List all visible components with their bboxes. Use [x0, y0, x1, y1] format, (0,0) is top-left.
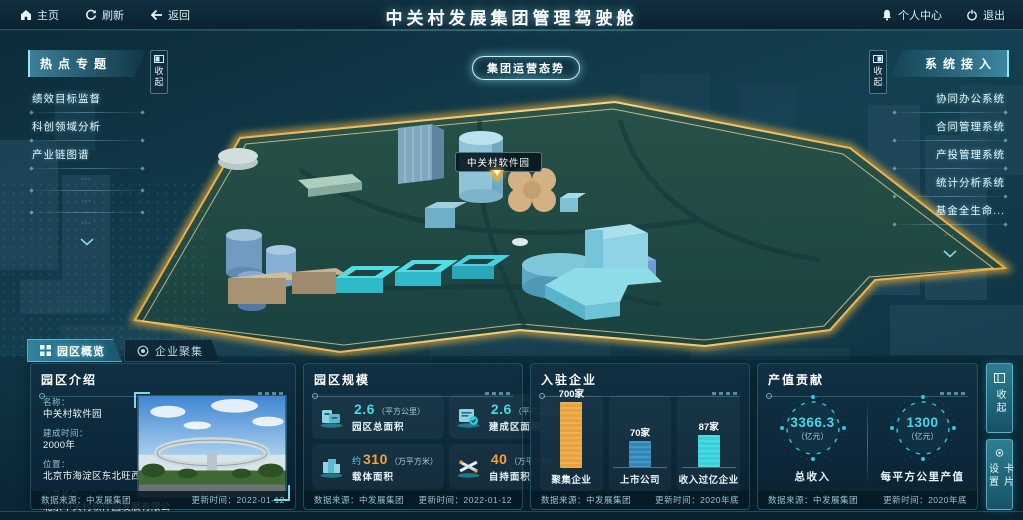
bar-value-label: 700家 — [559, 386, 584, 400]
stat-total-area: 2.6（平方公里） 园区总面积 — [312, 394, 444, 439]
system-item[interactable]: 产投管理系统 — [891, 141, 1009, 168]
stat-unit: （万平方米） — [390, 456, 438, 467]
placeholder-item: ⋯ — [28, 213, 146, 234]
stat-carrier-area: 约310（万平方米） 载体面积 — [312, 444, 444, 489]
data-source: 数据来源：中发展集团 — [541, 494, 631, 506]
system-access-panel: 系统接入 收起 协同办公系统 合同管理系统 产投管理系统 统计分析系统 基金全生… — [891, 50, 1009, 258]
stat-value: 2.6 — [354, 401, 375, 417]
stat-name: 园区总面积 — [352, 419, 425, 433]
cross-area-icon — [455, 453, 482, 480]
tab-enterprise-cluster[interactable]: 企业聚集 — [124, 339, 220, 362]
bar-category-label: 聚集企业 — [551, 472, 591, 486]
panel-title: 园区介绍 — [31, 364, 295, 388]
bar-card: 70家 上市公司 — [609, 395, 672, 491]
bar-value-label: 70家 — [630, 425, 650, 439]
system-item[interactable]: 合同管理系统 — [891, 113, 1009, 140]
map-marker-pin-icon[interactable] — [490, 170, 504, 181]
bar-value-label: 87家 — [699, 419, 719, 433]
hot-topic-item[interactable]: 科创领域分析 — [28, 113, 146, 140]
divider — [28, 112, 146, 113]
panel-title: 产值贡献 — [758, 364, 977, 388]
gauge-unit: （亿元） — [797, 431, 829, 442]
update-time: 更新时间：2020年底 — [883, 494, 967, 506]
gauge-value: 3366.3 — [790, 415, 834, 430]
refresh-icon — [85, 9, 97, 21]
home-button[interactable]: 主页 — [20, 7, 59, 23]
stat-value: 40 — [491, 451, 508, 467]
gauge-total-revenue: 3366.3 （亿元） 总收入 — [758, 394, 867, 492]
update-time: 更新时间：2022-01-12 — [419, 494, 512, 506]
hot-topic-item[interactable]: 绩效目标监督 — [28, 85, 146, 112]
placeholder-item: ⋯ — [28, 169, 146, 190]
bar-card: 87家 收入过亿企业 — [677, 395, 740, 491]
park-scale-panel: 园区规模 2.6（平方公里） 园区总面积 2.6（平方公里） 建成区面 — [303, 363, 523, 510]
bar-baseline — [613, 467, 667, 468]
placeholder-item: ⋯ — [28, 191, 146, 212]
divider — [891, 112, 1009, 113]
data-source: 数据来源：中发展集团 — [41, 494, 131, 506]
power-icon — [966, 9, 978, 21]
divider — [891, 168, 1009, 169]
collapse-icon — [154, 55, 164, 63]
bar-category-label: 上市公司 — [620, 472, 660, 486]
data-source: 数据来源：中发展集团 — [768, 494, 858, 506]
stat-value: 310 — [363, 451, 388, 467]
update-time: 更新时间：2020年底 — [655, 494, 739, 506]
gauge-unit: （亿元） — [907, 431, 939, 442]
park-map-label[interactable]: 中关村软件园 — [455, 152, 542, 172]
system-access-collapse-button[interactable]: 收起 — [869, 50, 887, 94]
bar — [629, 441, 651, 467]
stat-name: 载体面积 — [352, 469, 438, 483]
expand-more-button[interactable] — [891, 246, 1009, 258]
divider — [891, 140, 1009, 141]
placeholder-item: ⋯ — [891, 225, 1009, 246]
stat-unit: （平方公里） — [377, 406, 425, 417]
gauge-name: 总收入 — [795, 469, 831, 484]
bottom-edge — [0, 511, 1023, 520]
top-bar: 主页 刷新 返回 中关村发展集团管理驾驶舱 个人中心 — [0, 0, 1023, 30]
bar — [698, 435, 720, 467]
divider — [28, 140, 146, 141]
divider — [891, 196, 1009, 197]
tab-park-overview[interactable]: 园区概览 — [27, 339, 122, 362]
page-title: 中关村发展集团管理驾驶舱 — [386, 4, 638, 29]
carrier-buildings-icon — [318, 453, 345, 480]
collapse-icon — [994, 373, 1005, 383]
bar-category-label: 收入过亿企业 — [679, 472, 739, 486]
chevron-down-icon — [79, 238, 95, 246]
bell-icon — [881, 9, 893, 21]
bar — [560, 402, 582, 468]
divider — [891, 224, 1009, 225]
resident-enterprises-panel: 入驻企业 700家 聚集企业 70家 上市公司 87家 收入过亿企业 — [530, 363, 750, 510]
park-photo — [137, 395, 287, 498]
card-settings-button[interactable]: 卡片设置 — [986, 439, 1013, 510]
building-icon — [318, 403, 345, 430]
collapse-icon — [873, 55, 883, 63]
park-intro-panel: 园区介绍 名称： 中关村软件园 建成时间： 2000年 位置： 北京市海淀区东北… — [30, 363, 296, 510]
panel-title: 入驻企业 — [531, 364, 749, 388]
personal-center-button[interactable]: 个人中心 — [881, 7, 942, 23]
hot-topics-collapse-button[interactable]: 收起 — [150, 50, 168, 94]
group-operation-status-button[interactable]: 集团运营态势 — [472, 56, 580, 80]
system-access-title: 系统接入 — [891, 50, 1009, 77]
enterprise-bar-chart: 700家 聚集企业 70家 上市公司 87家 收入过亿企业 — [540, 395, 740, 491]
home-icon — [20, 9, 32, 21]
gauge-output-per-sqkm: 1300 （亿元） 每平方公里产值 — [868, 394, 977, 492]
settings-icon — [994, 449, 1005, 457]
expand-more-button[interactable] — [28, 234, 146, 246]
system-item[interactable]: 统计分析系统 — [891, 169, 1009, 196]
chevron-down-icon — [942, 250, 958, 258]
update-time: 更新时间：2022-01-12 — [192, 494, 285, 506]
divider — [28, 168, 146, 169]
hot-topics-panel: 热点专题 收起 绩效目标监督 科创领域分析 产业链图谱 ⋯ ⋯ ⋯ — [28, 50, 146, 246]
hot-topics-title: 热点专题 — [28, 50, 146, 77]
stat-value: 2.6 — [491, 401, 512, 417]
back-button[interactable]: 返回 — [150, 7, 190, 23]
refresh-button[interactable]: 刷新 — [85, 7, 124, 23]
data-source: 数据来源：中发展集团 — [314, 494, 404, 506]
bar-card: 700家 聚集企业 — [540, 395, 603, 491]
system-item[interactable]: 基金全生命... — [891, 197, 1009, 224]
logout-button[interactable]: 退出 — [966, 7, 1005, 23]
panel-title: 园区规模 — [304, 364, 522, 388]
back-arrow-icon — [150, 9, 163, 21]
output-contribution-panel: 产值贡献 3366.3 （亿元） 总收入 — [757, 363, 978, 510]
grid-icon — [40, 345, 51, 356]
gauge-name: 每平方公里产值 — [881, 469, 965, 484]
enterprise-icon — [137, 345, 149, 357]
gauge-value: 1300 — [906, 415, 938, 430]
blueprint-icon — [455, 403, 482, 430]
dock-tabs: 园区概览 企业聚集 — [27, 339, 220, 362]
divider — [28, 190, 146, 191]
bar-baseline — [682, 467, 736, 468]
hot-topic-item[interactable]: 产业链图谱 — [28, 141, 146, 168]
divider — [28, 212, 146, 213]
dock-collapse-button[interactable]: 收起 — [986, 363, 1013, 433]
system-item[interactable]: 协同办公系统 — [891, 85, 1009, 112]
